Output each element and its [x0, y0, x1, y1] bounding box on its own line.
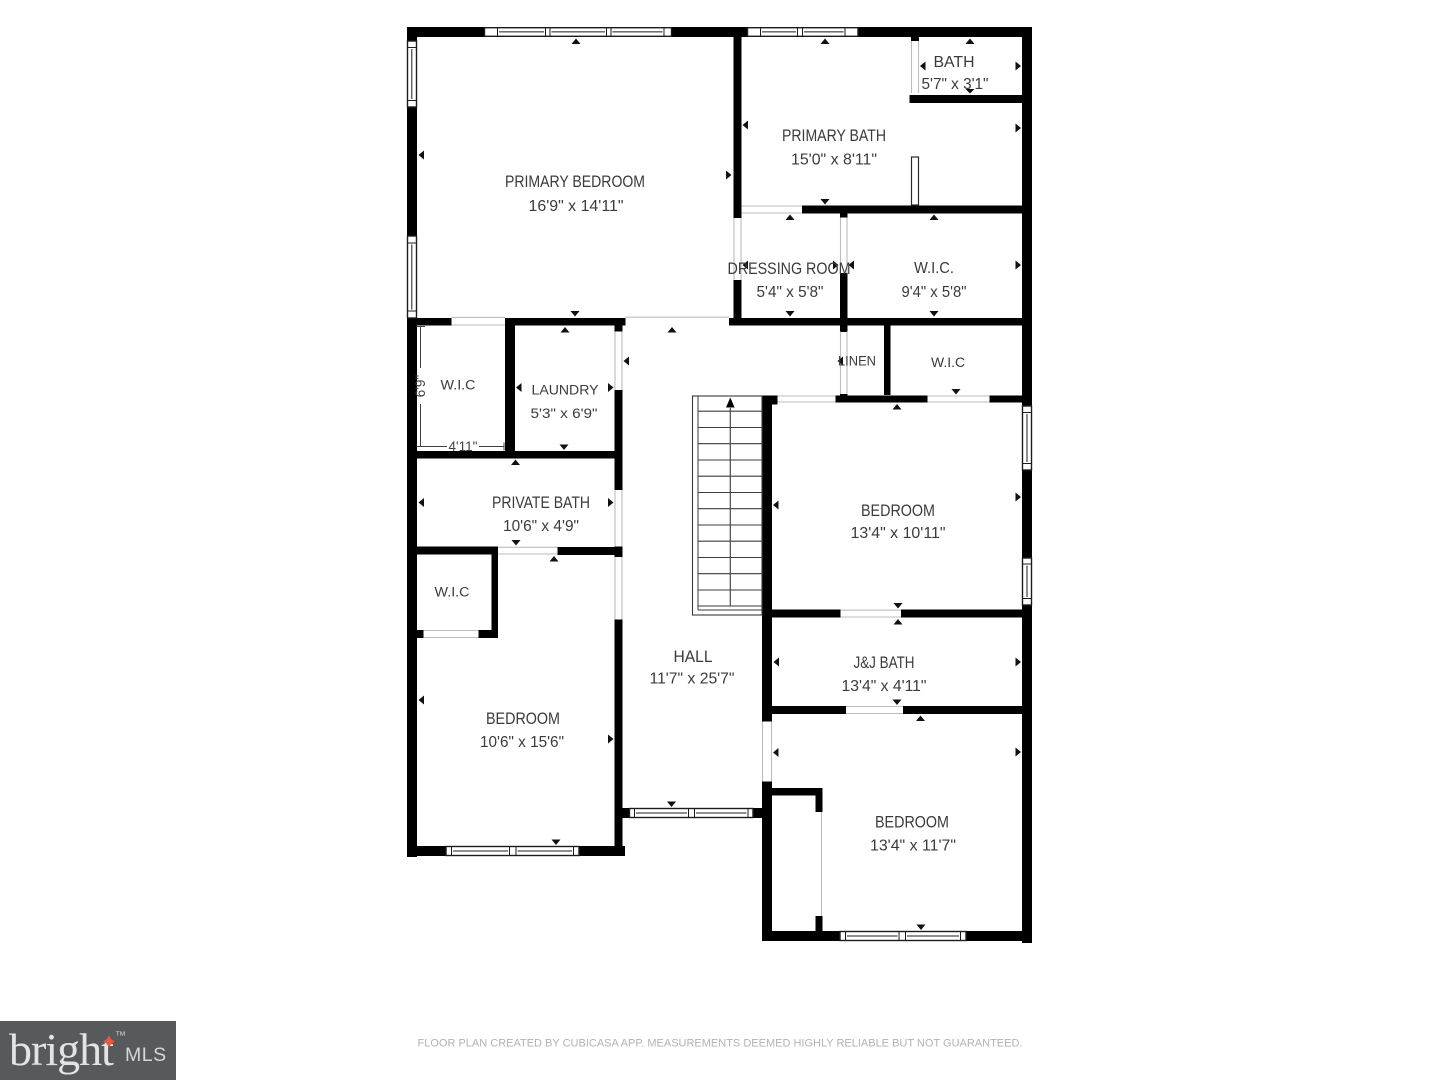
svg-text:4'11": 4'11": [449, 439, 478, 454]
svg-text:BEDROOM: BEDROOM: [875, 814, 949, 832]
svg-text:BEDROOM: BEDROOM: [861, 502, 935, 520]
svg-text:BATH: BATH: [934, 54, 975, 71]
svg-text:15'0" x 8'11": 15'0" x 8'11": [791, 152, 877, 169]
svg-text:13'4" x 10'11": 13'4" x 10'11": [851, 525, 946, 542]
svg-text:BEDROOM: BEDROOM: [486, 710, 560, 728]
svg-text:13'4" x 11'7": 13'4" x 11'7": [870, 838, 956, 855]
svg-text:™: ™: [115, 1030, 126, 1042]
svg-text:5'7" x 3'1": 5'7" x 3'1": [922, 76, 989, 93]
svg-text:PRIMARY BATH: PRIMARY BATH: [782, 127, 886, 145]
svg-text:6'9": 6'9": [413, 375, 428, 398]
svg-text:W.I.C: W.I.C: [931, 354, 965, 370]
svg-text:11'7" x 25'7": 11'7" x 25'7": [650, 671, 735, 688]
svg-text:16'9" x 14'11": 16'9" x 14'11": [529, 198, 624, 215]
svg-text:MLS: MLS: [125, 1044, 167, 1066]
svg-text:PRIVATE BATH: PRIVATE BATH: [492, 494, 590, 512]
svg-text:10'6" x 15'6": 10'6" x 15'6": [480, 734, 564, 751]
svg-text:W.I.C: W.I.C: [435, 585, 470, 600]
svg-text:W.I.C.: W.I.C.: [914, 260, 954, 277]
svg-text:DRESSING ROOM: DRESSING ROOM: [728, 260, 851, 278]
svg-text:10'6" x 4'9": 10'6" x 4'9": [503, 518, 579, 535]
svg-text:W.I.C: W.I.C: [441, 378, 476, 393]
svg-text:LINEN: LINEN: [838, 353, 876, 369]
svg-text:bright: bright: [9, 1024, 114, 1075]
svg-text:5'3" x 6'9": 5'3" x 6'9": [531, 406, 598, 421]
svg-text:J&J BATH: J&J BATH: [854, 654, 915, 672]
svg-text:5'4" x 5'8": 5'4" x 5'8": [757, 284, 824, 301]
svg-text:LAUNDRY: LAUNDRY: [532, 383, 599, 398]
svg-text:FLOOR PLAN CREATED BY CUBICASA: FLOOR PLAN CREATED BY CUBICASA APP. MEAS…: [418, 1038, 1023, 1050]
svg-text:PRIMARY BEDROOM: PRIMARY BEDROOM: [505, 173, 645, 191]
svg-text:HALL: HALL: [674, 648, 713, 666]
svg-text:9'4" x 5'8": 9'4" x 5'8": [902, 284, 967, 301]
svg-text:13'4" x 4'11": 13'4" x 4'11": [842, 678, 927, 695]
